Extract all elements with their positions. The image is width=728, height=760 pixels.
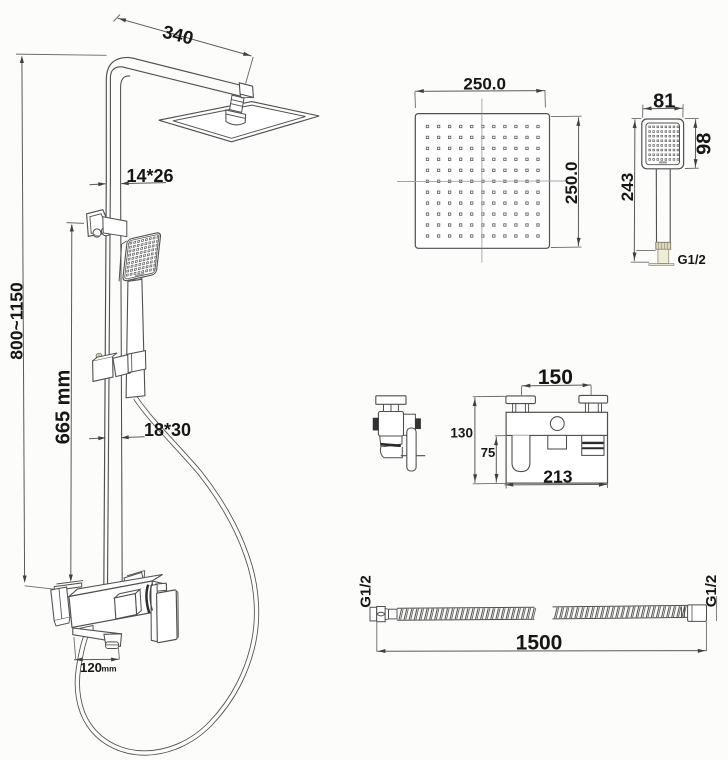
svg-text:243: 243 [618,173,637,201]
svg-text:18*30: 18*30 [144,420,191,440]
svg-text:G1/2: G1/2 [358,575,375,608]
svg-text:665 mm: 665 mm [52,370,74,445]
svg-text:G1/2: G1/2 [678,252,706,267]
svg-text:81: 81 [653,91,675,113]
svg-text:98: 98 [694,133,716,155]
svg-text:130: 130 [450,425,473,440]
svg-text:75: 75 [481,445,495,460]
svg-text:213: 213 [543,467,572,487]
svg-text:800~1150: 800~1150 [7,282,27,360]
svg-text:120: 120 [80,660,102,675]
svg-text:250.0: 250.0 [463,74,506,93]
svg-text:150: 150 [538,366,573,389]
svg-text:14*26: 14*26 [126,166,173,186]
svg-text:mm: mm [102,664,118,674]
svg-text:G1/2: G1/2 [703,575,720,608]
svg-text:250.0: 250.0 [562,162,581,205]
svg-text:1500: 1500 [516,632,563,655]
